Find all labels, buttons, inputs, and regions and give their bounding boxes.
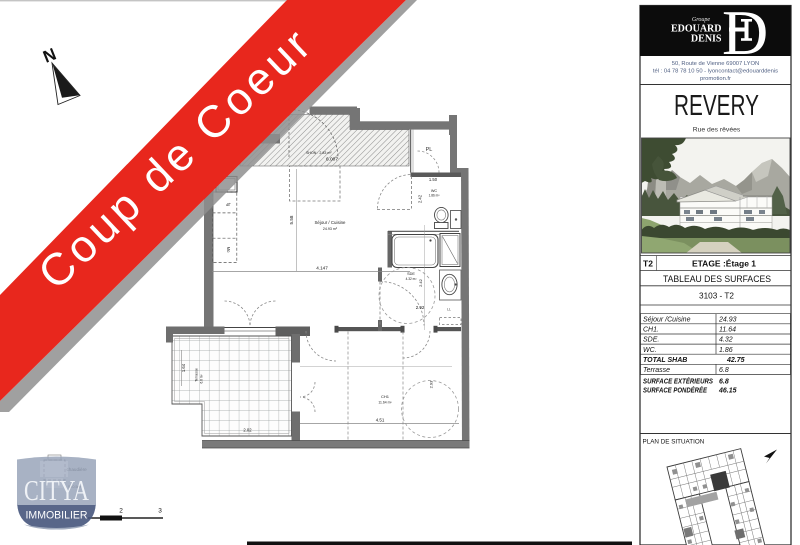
svg-text:IMMOBILIER: IMMOBILIER — [26, 510, 88, 522]
svg-text:Terrasse: Terrasse — [643, 367, 670, 374]
svg-text:Groupe: Groupe — [692, 17, 710, 23]
svg-text:1.50: 1.50 — [429, 177, 438, 182]
svg-text:Séjour / Cuisine: Séjour / Cuisine — [315, 220, 347, 225]
svg-text:24.93: 24.93 — [718, 317, 737, 324]
svg-text:Séjour /Cuisine: Séjour /Cuisine — [643, 317, 691, 324]
svg-text:promotion.fr: promotion.fr — [700, 76, 731, 82]
svg-text:42.75: 42.75 — [726, 357, 745, 364]
svg-text:11.64: 11.64 — [719, 327, 736, 334]
svg-text:4.32: 4.32 — [719, 337, 733, 344]
svg-text:1.64: 1.64 — [181, 363, 186, 372]
svg-text:LL: LL — [447, 308, 451, 312]
svg-text:1.86 m²: 1.86 m² — [429, 194, 440, 198]
svg-text:1.86: 1.86 — [719, 347, 733, 354]
svg-text:46.15: 46.15 — [718, 388, 737, 395]
svg-text:T2: T2 — [643, 259, 653, 269]
svg-text:Mo: Mo — [226, 247, 231, 253]
svg-text:6.8: 6.8 — [719, 367, 729, 374]
svg-text:4.147: 4.147 — [316, 266, 328, 271]
svg-text:DENIS: DENIS — [691, 34, 722, 45]
svg-text:tél : 04 78 78 10 50 - lyoncon: tél : 04 78 78 10 50 - lyoncontact@edoua… — [653, 69, 778, 75]
svg-text:4.51: 4.51 — [376, 418, 385, 423]
svg-text:WC.: WC. — [643, 347, 657, 354]
svg-text:2.42: 2.42 — [418, 194, 423, 203]
svg-text:2.92: 2.92 — [416, 305, 425, 310]
svg-text:CITYA: CITYA — [24, 475, 89, 507]
svg-text:24.93 m²: 24.93 m² — [323, 227, 338, 231]
svg-text:4.32 m²: 4.32 m² — [406, 277, 417, 281]
svg-text:SDE.: SDE. — [643, 337, 659, 344]
svg-text:6.8: 6.8 — [719, 379, 729, 386]
svg-text:SHON : 2.83 m²: SHON : 2.83 m² — [306, 151, 332, 155]
svg-text:2.02: 2.02 — [243, 428, 252, 433]
svg-text:ETAGE :Étage 1: ETAGE :Étage 1 — [692, 259, 756, 269]
svg-text:TABLEAU DES SURFACES: TABLEAU DES SURFACES — [663, 274, 771, 284]
svg-text:50, Route de Vienne 69007 LYON: 50, Route de Vienne 69007 LYON — [672, 61, 759, 67]
svg-text:2.42: 2.42 — [418, 278, 423, 287]
svg-text:REVERY: REVERY — [674, 90, 759, 122]
svg-text:SDE: SDE — [407, 272, 415, 276]
svg-text:2: 2 — [119, 508, 123, 515]
svg-text:Terrasse: Terrasse — [195, 368, 199, 382]
svg-text:6.8 m²: 6.8 m² — [200, 374, 204, 383]
svg-text:11.64 m²: 11.64 m² — [378, 401, 392, 405]
svg-text:SURFACE EXTÉRIEURS: SURFACE EXTÉRIEURS — [643, 377, 713, 386]
svg-text:5.58: 5.58 — [289, 215, 294, 224]
svg-text:TOTAL SHAB: TOTAL SHAB — [643, 357, 687, 364]
svg-text:WC: WC — [431, 189, 438, 193]
svg-text:CH1.: CH1. — [643, 327, 659, 334]
svg-text:6.007: 6.007 — [326, 157, 338, 163]
svg-text:3103 - T2: 3103 - T2 — [699, 291, 734, 301]
svg-text:SURFACE PONDÉRÉE: SURFACE PONDÉRÉE — [643, 386, 707, 395]
svg-text:PLAN DE SITUATION: PLAN DE SITUATION — [643, 439, 705, 446]
svg-text:2.93: 2.93 — [429, 380, 434, 389]
svg-text:CH1: CH1 — [381, 394, 390, 399]
svg-text:Rue des rêvées: Rue des rêvées — [693, 127, 741, 134]
svg-text:PL: PL — [426, 147, 433, 153]
svg-text:3: 3 — [158, 508, 162, 515]
